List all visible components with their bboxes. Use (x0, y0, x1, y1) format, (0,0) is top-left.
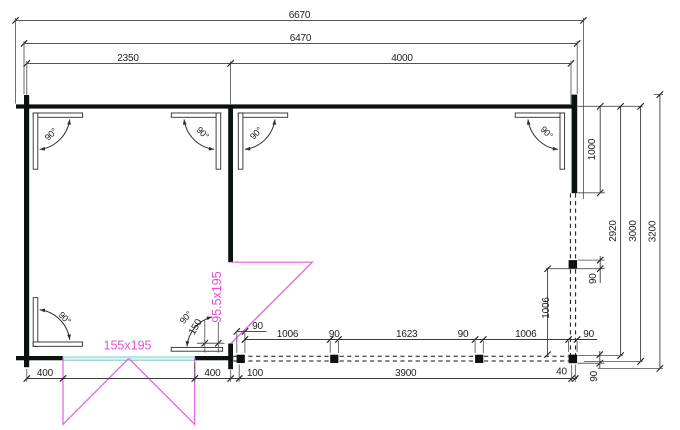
svg-text:90: 90 (588, 273, 599, 284)
svg-text:6470: 6470 (290, 33, 312, 44)
svg-text:90°: 90° (43, 126, 60, 143)
svg-text:40: 40 (556, 367, 567, 378)
svg-text:1006: 1006 (541, 297, 552, 319)
svg-text:90: 90 (329, 329, 340, 340)
svg-text:1006: 1006 (277, 329, 299, 340)
svg-text:155x195: 155x195 (104, 339, 152, 353)
svg-text:3000: 3000 (628, 220, 639, 242)
svg-text:90: 90 (589, 370, 600, 381)
svg-text:6670: 6670 (289, 10, 311, 21)
svg-text:90°: 90° (538, 124, 555, 141)
svg-text:100: 100 (247, 368, 264, 379)
svg-text:90: 90 (252, 321, 263, 332)
svg-text:90: 90 (583, 329, 594, 340)
svg-text:90°: 90° (194, 125, 211, 142)
svg-text:1006: 1006 (515, 329, 537, 340)
svg-text:90: 90 (458, 329, 469, 340)
svg-text:3900: 3900 (395, 368, 417, 379)
svg-text:1000: 1000 (587, 138, 598, 160)
svg-text:2350: 2350 (117, 53, 139, 64)
svg-text:1623: 1623 (396, 329, 418, 340)
svg-text:400: 400 (204, 368, 221, 379)
svg-text:400: 400 (37, 368, 54, 379)
svg-text:90°: 90° (56, 310, 73, 327)
svg-text:3200: 3200 (647, 220, 658, 242)
svg-text:4000: 4000 (391, 53, 413, 64)
svg-text:90°: 90° (248, 125, 265, 142)
svg-text:2920: 2920 (608, 220, 619, 242)
svg-text:95.5x195: 95.5x195 (210, 271, 224, 322)
